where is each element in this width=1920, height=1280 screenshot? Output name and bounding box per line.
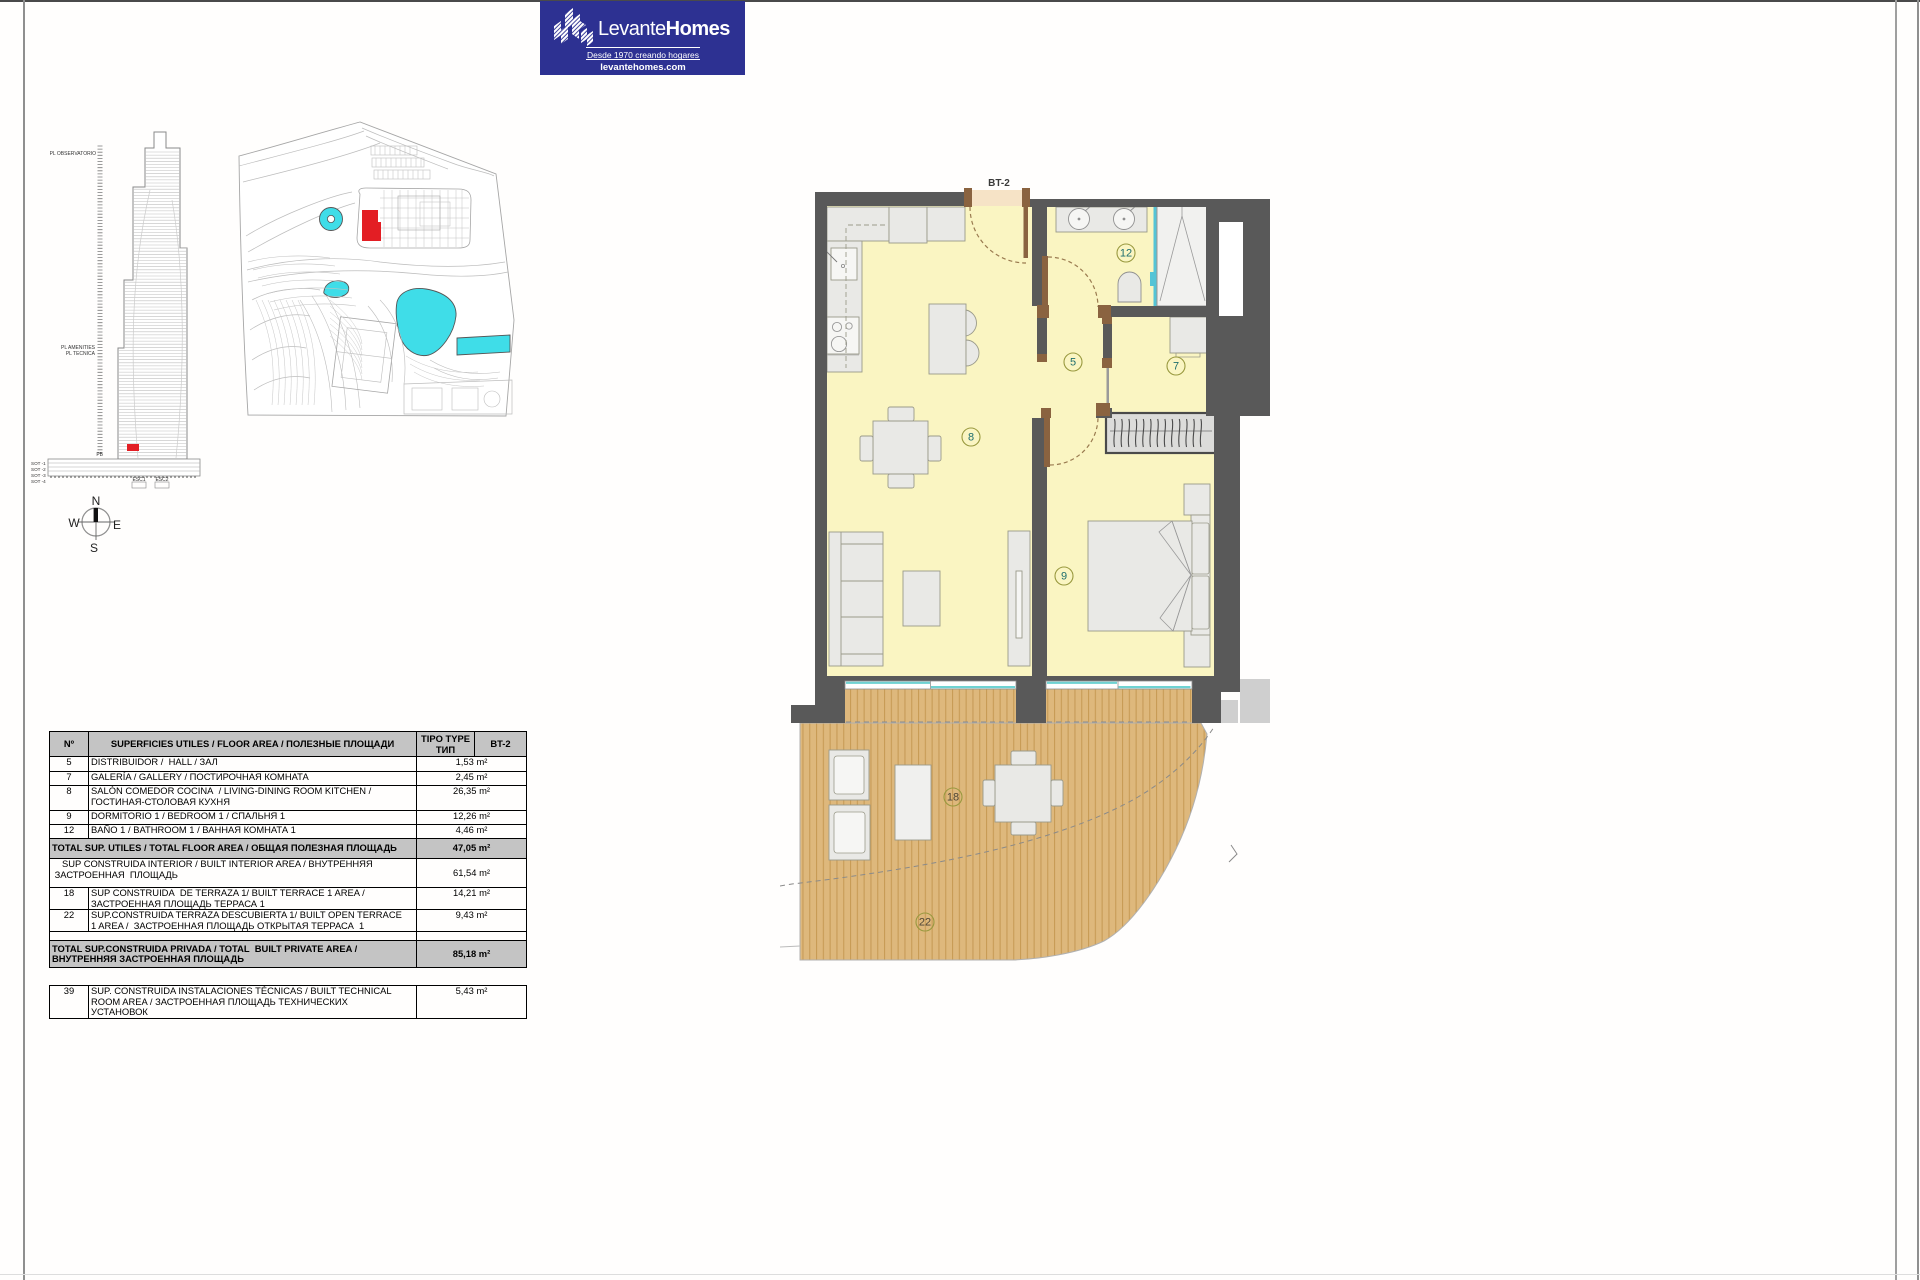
svg-text:7: 7 <box>1173 361 1179 373</box>
svg-text:9: 9 <box>1061 571 1067 583</box>
svg-text:N: N <box>92 494 101 508</box>
svg-text:12: 12 <box>1120 248 1132 260</box>
svg-text:18: 18 <box>947 792 959 804</box>
svg-text:PB: PB <box>96 452 103 458</box>
svg-text:PL OBSERVATORIO: PL OBSERVATORIO <box>50 151 97 157</box>
svg-text:5: 5 <box>1070 357 1076 369</box>
svg-text:S: S <box>90 541 98 555</box>
svg-text:SOT -1: SOT -1 <box>31 461 46 466</box>
svg-text:BT-2: BT-2 <box>988 178 1010 189</box>
svg-text:PL TECNICA: PL TECNICA <box>66 351 96 357</box>
svg-text:22: 22 <box>919 917 931 929</box>
svg-text:E: E <box>113 518 121 532</box>
svg-text:8: 8 <box>968 432 974 444</box>
svg-text:SOT -4: SOT -4 <box>31 479 46 484</box>
svg-text:SOT -2: SOT -2 <box>31 467 46 472</box>
svg-text:SOT -3: SOT -3 <box>31 473 46 478</box>
svg-text:W: W <box>68 516 80 530</box>
